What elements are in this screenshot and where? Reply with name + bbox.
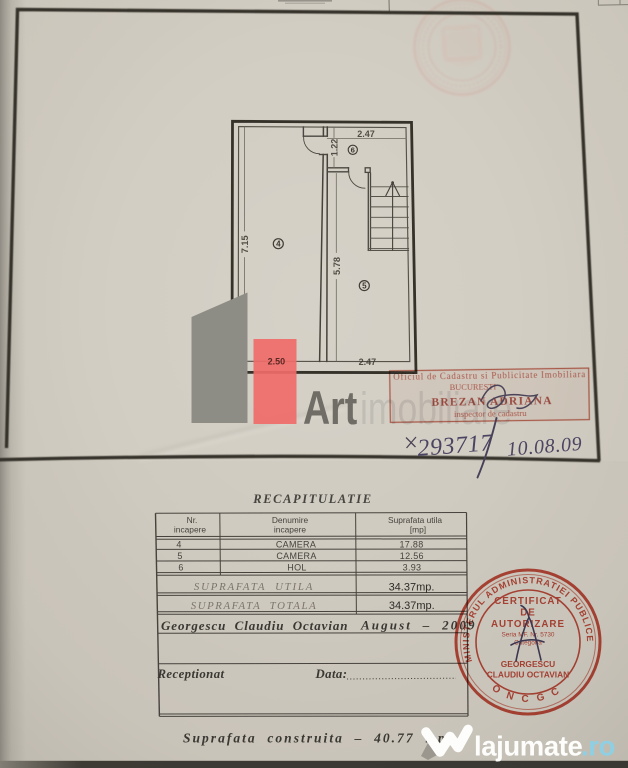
svg-text:1.22: 1.22 — [329, 139, 339, 157]
svg-text:CLAUDIU OCTAVIAN: CLAUDIU OCTAVIAN — [487, 670, 570, 680]
svg-text:CAMERA: CAMERA — [276, 539, 316, 549]
svg-text:SUPRAFATA UTILA: SUPRAFATA UTILA — [194, 581, 314, 593]
svg-text:5: 5 — [362, 282, 367, 291]
svg-text:Denumire: Denumire — [272, 515, 309, 525]
svg-text:Georgescu Claudiu Octavian: Georgescu Claudiu Octavian — [161, 618, 348, 633]
svg-text:inspector de cadastru: inspector de cadastru — [454, 408, 527, 419]
svg-text:CERTIFICAT: CERTIFICAT — [494, 596, 562, 607]
svg-text:Suprafata utila: Suprafata utila — [388, 515, 442, 525]
svg-text:.ro: .ro — [581, 731, 615, 762]
svg-text:GEORGESCU: GEORGESCU — [501, 659, 555, 669]
svg-text:Receptionat: Receptionat — [157, 667, 225, 681]
svg-text:BREZAN ADRIANA: BREZAN ADRIANA — [431, 395, 552, 409]
svg-text:3.93: 3.93 — [403, 563, 422, 573]
svg-text:4: 4 — [176, 539, 181, 549]
svg-text:Nr.: Nr. — [187, 515, 198, 525]
svg-text:2.47: 2.47 — [357, 129, 375, 139]
svg-text:12.56: 12.56 — [400, 551, 424, 561]
svg-text:BUCURESTI: BUCURESTI — [450, 382, 497, 392]
svg-text:CAMERA: CAMERA — [276, 551, 316, 561]
svg-text:RECAPITULATIE: RECAPITULATIE — [252, 492, 372, 506]
svg-text:6: 6 — [178, 563, 183, 573]
svg-text:SUPRAFATA TOTALA: SUPRAFATA TOTALA — [191, 600, 318, 612]
svg-text:Suprafata construita – 40.7: Suprafata construita – 40.77 mp. — [183, 731, 451, 746]
svg-text:Data:: Data: — [315, 667, 348, 681]
svg-text:incapere: incapere — [174, 525, 206, 535]
svg-text:Seria MF. Nr. 5730: Seria MF. Nr. 5730 — [502, 632, 555, 639]
svg-text:7.15: 7.15 — [240, 235, 250, 253]
svg-text:incapere: incapere — [274, 525, 306, 535]
svg-text:4: 4 — [276, 240, 281, 249]
svg-text:HOL: HOL — [287, 563, 306, 573]
svg-text:17.88: 17.88 — [399, 539, 423, 549]
svg-text:6: 6 — [351, 146, 355, 155]
svg-text:Art: Art — [303, 382, 357, 435]
svg-text:34.37mp.: 34.37mp. — [389, 600, 435, 612]
svg-text:5: 5 — [177, 551, 182, 561]
svg-text:[mp]: [mp] — [410, 525, 426, 535]
svg-text:2.50: 2.50 — [268, 357, 286, 367]
svg-text:34.37mp.: 34.37mp. — [389, 582, 435, 594]
svg-text:lajumate: lajumate — [474, 731, 582, 762]
svg-text:2.47: 2.47 — [359, 357, 377, 367]
svg-text:5.78: 5.78 — [332, 257, 342, 275]
